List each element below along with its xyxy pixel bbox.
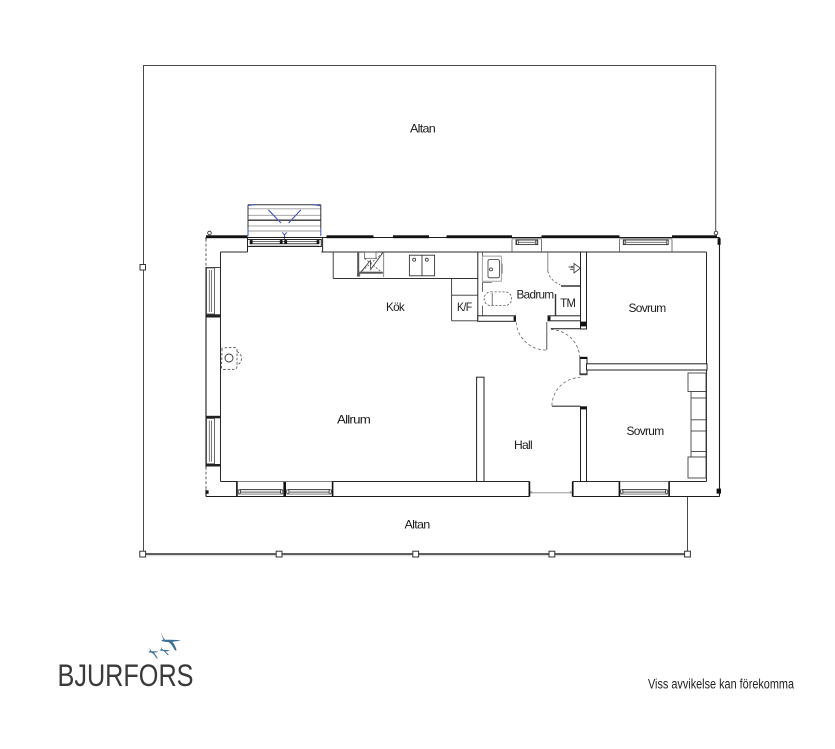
svg-text:Altan: Altan bbox=[410, 122, 435, 136]
svg-text:Sovrum: Sovrum bbox=[629, 301, 667, 315]
svg-text:Sovrum: Sovrum bbox=[627, 424, 665, 438]
svg-text:Hall: Hall bbox=[514, 438, 532, 452]
svg-text:BJURFORS: BJURFORS bbox=[58, 657, 194, 693]
svg-text:TM: TM bbox=[560, 296, 576, 310]
svg-text:Altan: Altan bbox=[405, 518, 430, 532]
svg-text:Badrum: Badrum bbox=[517, 287, 555, 301]
svg-text:Kök: Kök bbox=[386, 300, 406, 314]
svg-text:Viss avvikelse kan förekomma: Viss avvikelse kan förekomma bbox=[648, 677, 794, 692]
svg-text:K/F: K/F bbox=[457, 300, 472, 314]
svg-text:Allrum: Allrum bbox=[337, 413, 371, 427]
